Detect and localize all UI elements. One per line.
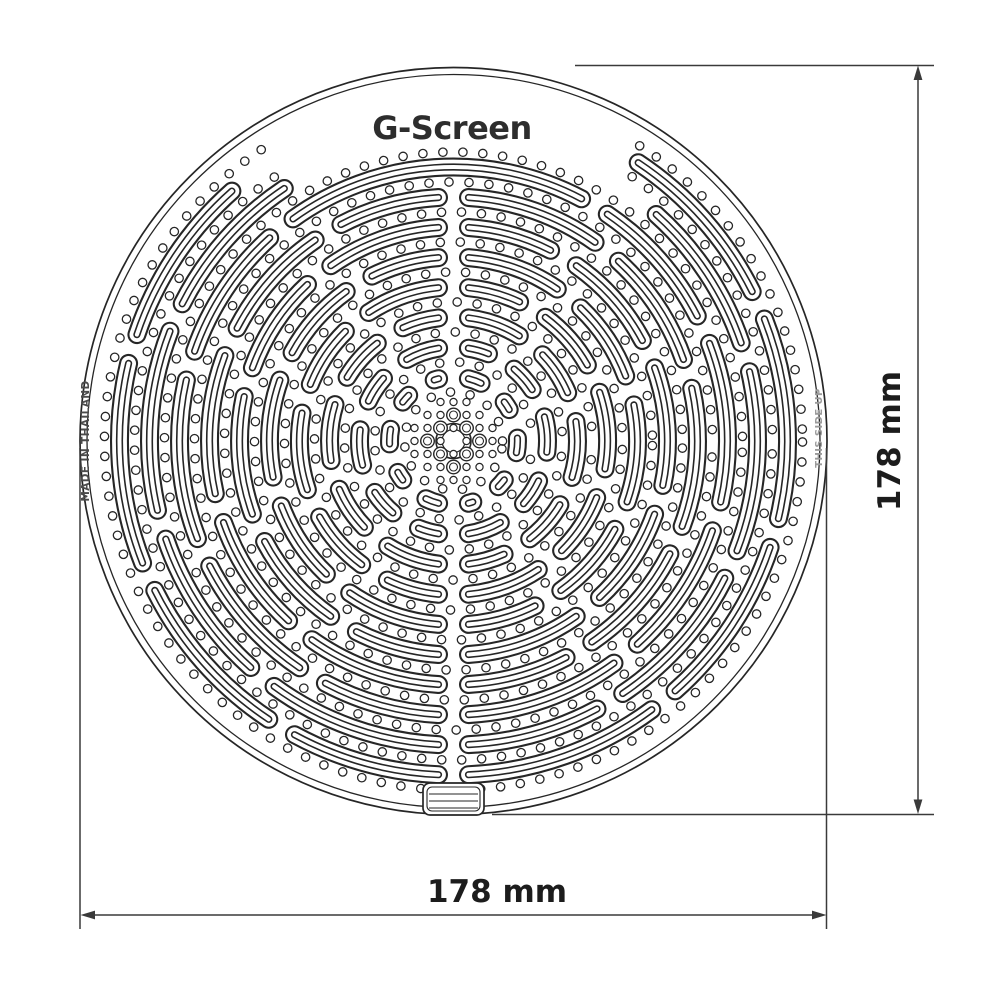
made-in-thailand-stamp: MADE IN THAILAND <box>80 380 92 501</box>
arrow-left-icon <box>81 911 96 920</box>
hub-small-hole <box>463 437 470 444</box>
hub-small-hole <box>411 437 418 444</box>
hub-small-hole <box>437 476 444 483</box>
hub-small-hole <box>424 424 431 431</box>
bottom-tab <box>423 783 484 815</box>
hub-small-hole <box>450 450 457 457</box>
hub-small-hole <box>424 450 431 457</box>
hub-medium-hole-inner <box>463 424 471 432</box>
hub-small-hole <box>489 450 496 457</box>
hub-small-hole <box>450 476 457 483</box>
hub-medium-hole-inner <box>424 437 432 445</box>
hub-small-hole <box>437 398 444 405</box>
slot-pattern <box>100 142 806 795</box>
product-title: G-Screen <box>372 109 532 147</box>
hub-medium-hole-inner <box>437 450 445 458</box>
center-hub <box>411 398 496 483</box>
hub-small-hole <box>411 424 418 431</box>
arrow-down-icon <box>914 800 923 815</box>
hub-small-hole <box>463 463 470 470</box>
hub-small-hole <box>437 411 444 418</box>
hub-small-hole <box>489 437 496 444</box>
tab-outline <box>423 783 484 815</box>
hub-medium-hole-inner <box>437 424 445 432</box>
hub-small-hole <box>463 411 470 418</box>
arrow-up-icon <box>914 66 923 81</box>
hub-small-hole <box>476 424 483 431</box>
hub-small-hole <box>437 463 444 470</box>
hub-small-hole <box>476 463 483 470</box>
hub-small-hole <box>463 476 470 483</box>
hub-small-hole <box>424 463 431 470</box>
hub-small-hole <box>437 437 444 444</box>
hub-small-hole <box>411 450 418 457</box>
hub-small-hole <box>450 398 457 405</box>
hub-medium-hole-inner <box>476 437 484 445</box>
hub-small-hole <box>489 424 496 431</box>
this-side-up-stamp: THIS SIDE UP <box>814 388 825 467</box>
hub-medium-hole-inner <box>463 450 471 458</box>
hub-small-hole <box>476 411 483 418</box>
hub-small-hole <box>450 424 457 431</box>
hub-small-hole <box>463 398 470 405</box>
hub-medium-hole-inner <box>450 411 458 419</box>
arrow-right-icon <box>812 911 827 920</box>
height-dimension-label: 178 mm <box>872 371 908 511</box>
hub-small-hole <box>476 450 483 457</box>
technical-drawing-canvas: 178 mm 178 mm G-Screen MADE IN THAILAND … <box>0 0 1000 1000</box>
urinal-screen-drawing: 178 mm 178 mm G-Screen MADE IN THAILAND … <box>0 0 1000 1000</box>
hub-medium-hole-inner <box>450 463 458 471</box>
width-dimension-label: 178 mm <box>427 874 567 910</box>
hub-small-hole <box>424 411 431 418</box>
